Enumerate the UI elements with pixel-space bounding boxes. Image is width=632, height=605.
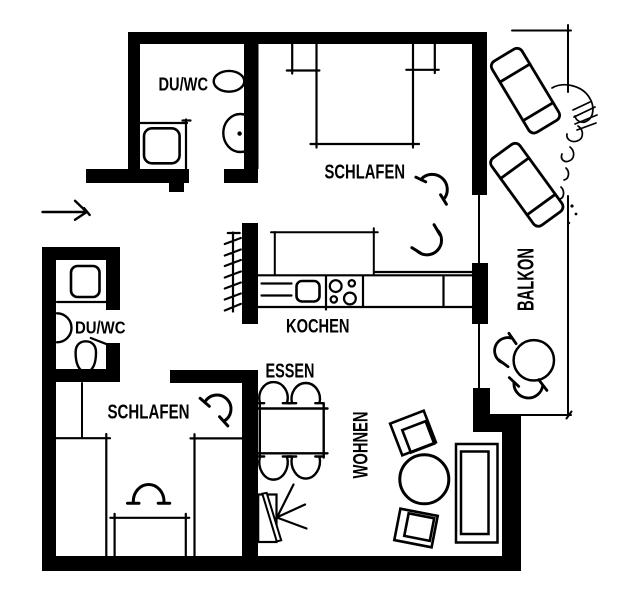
svg-text:SCHLAFEN: SCHLAFEN <box>325 162 406 184</box>
svg-text:DU/WC: DU/WC <box>75 318 126 338</box>
svg-text:WOHNEN: WOHNEN <box>350 412 373 479</box>
svg-text:SCHLAFEN: SCHLAFEN <box>108 402 190 424</box>
svg-text:KOCHEN: KOCHEN <box>286 316 350 338</box>
svg-text:BALKON: BALKON <box>513 248 539 311</box>
svg-text:ESSEN: ESSEN <box>266 361 315 383</box>
svg-text:DU/WC: DU/WC <box>159 74 209 95</box>
